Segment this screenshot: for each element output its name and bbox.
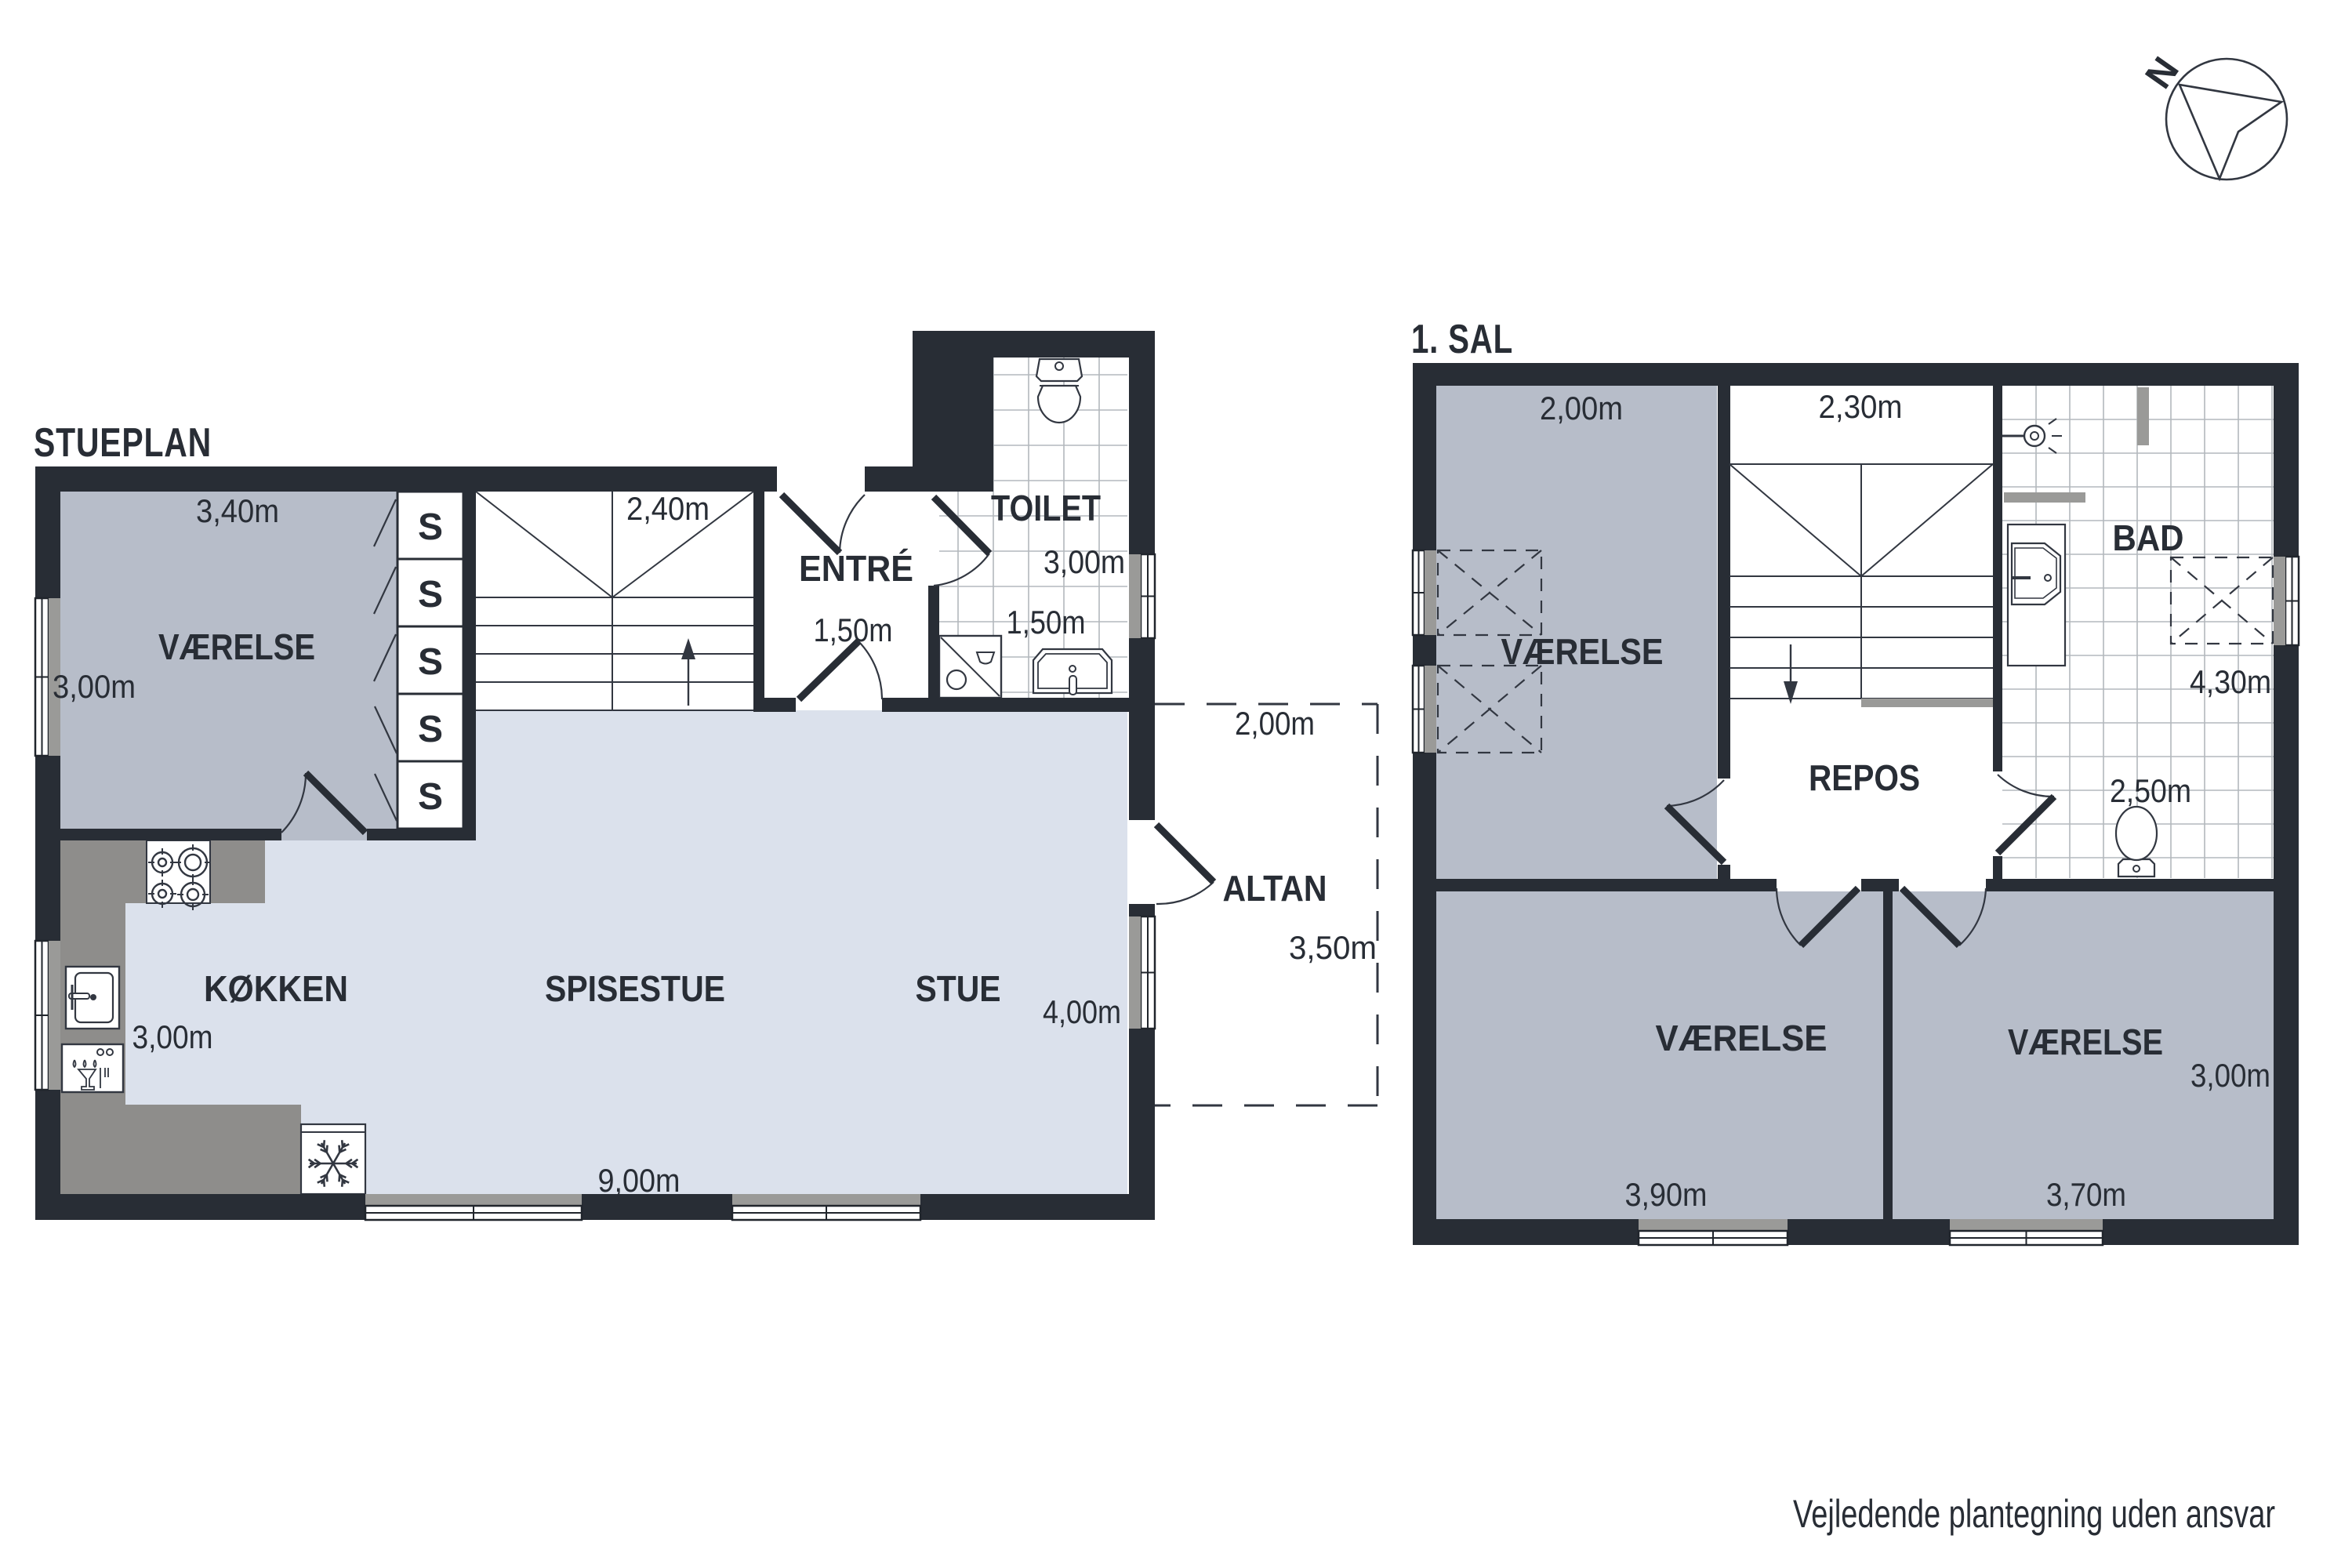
svg-text:BAD: BAD: [2113, 517, 2184, 558]
svg-text:ENTRÉ: ENTRÉ: [799, 548, 913, 589]
svg-text:2,40m: 2,40m: [626, 490, 710, 527]
svg-text:1. SAL: 1. SAL: [1411, 317, 1513, 362]
svg-text:Vejledende plantegning uden an: Vejledende plantegning uden ansvar: [1793, 1492, 2275, 1536]
svg-text:3,00m: 3,00m: [53, 668, 136, 705]
svg-text:ALTAN: ALTAN: [1223, 868, 1327, 909]
svg-text:3,50m: 3,50m: [1289, 929, 1377, 966]
svg-text:S: S: [418, 574, 443, 615]
svg-text:3,00m: 3,00m: [132, 1018, 213, 1055]
svg-text:2,30m: 2,30m: [1819, 388, 1903, 425]
svg-text:4,00m: 4,00m: [1043, 993, 1121, 1030]
svg-text:VÆRELSE: VÆRELSE: [2008, 1022, 2163, 1062]
svg-text:STUE: STUE: [916, 968, 1001, 1009]
svg-text:S: S: [418, 776, 443, 818]
svg-text:1,50m: 1,50m: [814, 612, 893, 648]
svg-text:4,30m: 4,30m: [2190, 663, 2271, 700]
svg-text:2,50m: 2,50m: [2110, 772, 2191, 809]
svg-text:VÆRELSE: VÆRELSE: [1656, 1018, 1828, 1058]
svg-text:SPISESTUE: SPISESTUE: [545, 968, 725, 1009]
svg-text:3,70m: 3,70m: [2046, 1176, 2126, 1213]
svg-text:9,00m: 9,00m: [598, 1162, 681, 1199]
svg-text:REPOS: REPOS: [1809, 757, 1920, 798]
svg-text:3,00m: 3,00m: [2190, 1057, 2270, 1094]
svg-text:VÆRELSE: VÆRELSE: [1501, 631, 1664, 672]
svg-text:S: S: [418, 709, 443, 750]
svg-text:2,00m: 2,00m: [1235, 705, 1315, 742]
svg-text:3,00m: 3,00m: [1044, 543, 1125, 580]
svg-text:S: S: [418, 506, 443, 548]
svg-text:TOILET: TOILET: [991, 488, 1101, 528]
svg-text:2,00m: 2,00m: [1540, 390, 1623, 426]
svg-text:STUEPLAN: STUEPLAN: [34, 420, 212, 466]
svg-text:KØKKEN: KØKKEN: [204, 968, 348, 1009]
svg-text:VÆRELSE: VÆRELSE: [158, 626, 315, 667]
svg-text:3,90m: 3,90m: [1625, 1176, 1708, 1213]
svg-text:1,50m: 1,50m: [1007, 604, 1086, 641]
svg-text:3,40m: 3,40m: [196, 492, 279, 529]
svg-text:S: S: [418, 641, 443, 683]
